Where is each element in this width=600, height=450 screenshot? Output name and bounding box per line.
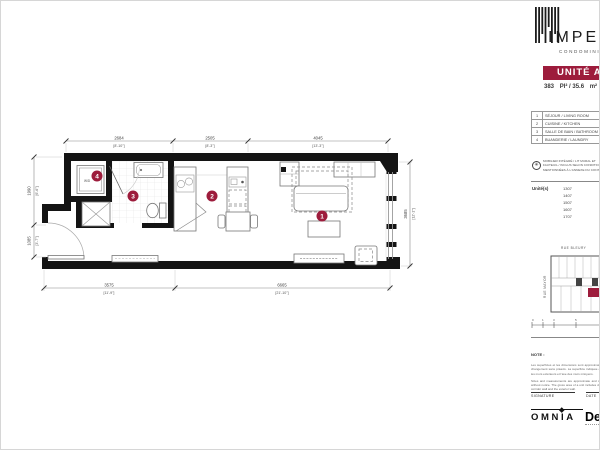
unit-number: 1507 [563, 200, 572, 207]
svg-text:2505: 2505 [205, 136, 215, 141]
unit-number: 1607 [563, 207, 572, 214]
wall-left-step [42, 204, 71, 211]
dining-chair [251, 215, 258, 228]
window-mullion [387, 224, 397, 229]
svg-text:2684: 2684 [114, 136, 124, 141]
wall-laundry-right [106, 161, 112, 202]
living-room [280, 162, 377, 265]
svg-text:[13'-3"]: [13'-3"] [312, 144, 323, 148]
omnia-logo: OMNIA [531, 409, 583, 423]
entry-door-swing [48, 223, 84, 259]
svg-text:3685: 3685 [403, 209, 408, 219]
svg-text:[11'-9"]: [11'-9"] [104, 291, 115, 295]
signature-line: SIGNATURE [531, 392, 575, 398]
unit-area: 383 PI² / 35.6 m² [544, 84, 600, 90]
toilet-bowl [147, 203, 159, 217]
svg-text:3: 3 [553, 318, 555, 322]
keyplan: RUE MAYOR [536, 252, 600, 316]
furniture-note: ✳ MOBILIER INTÉGRÉ / LIT MURAL ET FAUTEU… [531, 159, 600, 172]
entry [48, 223, 158, 262]
svg-text:5: 5 [575, 318, 577, 322]
room-marker-2-label: 2 [210, 193, 214, 200]
notes-title: NOTE : [531, 352, 545, 357]
window-mullion [387, 196, 397, 201]
toilet-tank [160, 203, 167, 218]
wall-entry-stub [42, 257, 48, 269]
scale-bar: 0 1 3 5 [530, 317, 600, 329]
room-marker-4-label: 4 [95, 173, 99, 180]
developer-logo: De [585, 411, 600, 425]
washer-label: W/D [84, 179, 91, 183]
svg-text:6665: 6665 [277, 282, 287, 287]
legend-row: 3 SALLE DE BAIN / BATHROOM [532, 128, 600, 136]
asterisk-circle-icon: ✳ [532, 161, 541, 170]
faucet [241, 181, 244, 184]
brand-name: IMPERIA [548, 29, 600, 47]
dimension-right: 3685 [12'-1"] [399, 160, 416, 269]
svg-text:0: 0 [532, 318, 534, 322]
svg-text:1085: 1085 [27, 236, 32, 246]
column [281, 167, 286, 172]
brand-subtitle: CONDOMINIUMS [559, 49, 600, 54]
svg-text:[8'-3"]: [8'-3"] [205, 144, 214, 148]
keyplan-street-left: RUE MAYOR [543, 275, 547, 298]
notes-paragraph-fr: Les superficies et les dimensions sont a… [531, 363, 600, 376]
wall-left-lower [42, 211, 48, 223]
notes-block: NOTE : Les superficies et les dimensions… [531, 343, 600, 395]
room-marker-3-label: 3 [131, 193, 135, 200]
units-list: 1307 1407 1507 1607 1707 [563, 186, 572, 220]
wall-bath-right [168, 161, 174, 228]
unit-number: 1307 [563, 186, 572, 193]
keyplan-core [592, 278, 598, 286]
keyplan-highlighted-unit [588, 288, 600, 297]
room-marker-1-label: 1 [320, 213, 324, 220]
kitchen-counter [174, 167, 196, 231]
area-unit: m² [590, 84, 597, 90]
svg-text:[6'-6"]: [6'-6"] [35, 186, 39, 195]
storage-cabinet [334, 162, 375, 177]
svg-text:4045: 4045 [313, 136, 323, 141]
entry-door-leaf [48, 256, 84, 260]
divider [531, 337, 600, 338]
svg-text:[12'-1"]: [12'-1"] [412, 208, 416, 219]
unit-title-banner: UNITÉ A [543, 66, 600, 80]
bathtub-drain [140, 169, 142, 171]
legend-row: 2 CUISINE / KITCHEN [532, 120, 600, 128]
legend-row: 1 SÉJOUR / LIVING ROOM [532, 112, 600, 120]
info-sidebar: IMPERIA CONDOMINIUMS UNITÉ A 383 PI² / 3… [528, 0, 600, 450]
legend-row: 4 BUANDERIE / LAUNDRY [532, 136, 600, 144]
svg-text:[3'-7"]: [3'-7"] [35, 236, 39, 245]
divider [531, 181, 600, 182]
sofa [294, 186, 348, 211]
floor-plan-svg: .dim{font:4.2px "Liberation Sans",sans-s… [0, 0, 600, 450]
area-sqft: 383 [544, 84, 554, 90]
svg-text:[8'-10"]: [8'-10"] [113, 144, 124, 148]
developer-logo-subtext [585, 424, 599, 425]
coffee-table [308, 221, 340, 237]
area-mid: PI² / 35.6 [560, 84, 584, 90]
svg-text:1990: 1990 [27, 186, 32, 196]
dining-chair [218, 215, 225, 228]
window-mullion [387, 242, 397, 247]
wall-laundry-bottom [71, 196, 112, 202]
notes-paragraph-en: Sizes and measurements are approximate a… [531, 379, 600, 392]
dimension-bottom: 3575 [11'-9"] 6665 [21'-10"] [42, 270, 393, 295]
dimension-top: 2684 [8'-10"] 2505 [8'-3"] 4045 [13'-3"] [64, 136, 391, 152]
unit-number: 1707 [563, 214, 572, 221]
svg-text:1: 1 [542, 318, 544, 322]
svg-text:[21'-10"]: [21'-10"] [275, 291, 288, 295]
wall-left-upper [64, 153, 71, 210]
date-line: DATE [586, 392, 600, 398]
wall-top-right-corner [380, 153, 398, 172]
svg-text:3575: 3575 [104, 282, 114, 287]
unit-number: 1407 [563, 193, 572, 200]
room-legend: 1 SÉJOUR / LIVING ROOM 2 CUISINE / KITCH… [531, 111, 600, 144]
units-label: Unité(s) [532, 186, 548, 191]
omnia-logo-line [531, 409, 583, 410]
wall-top [64, 153, 380, 161]
dining-table [226, 212, 250, 231]
keyplan-core [576, 278, 582, 286]
window-head [387, 170, 397, 174]
keyplan-street-top: RUE BLEURY [561, 246, 586, 250]
